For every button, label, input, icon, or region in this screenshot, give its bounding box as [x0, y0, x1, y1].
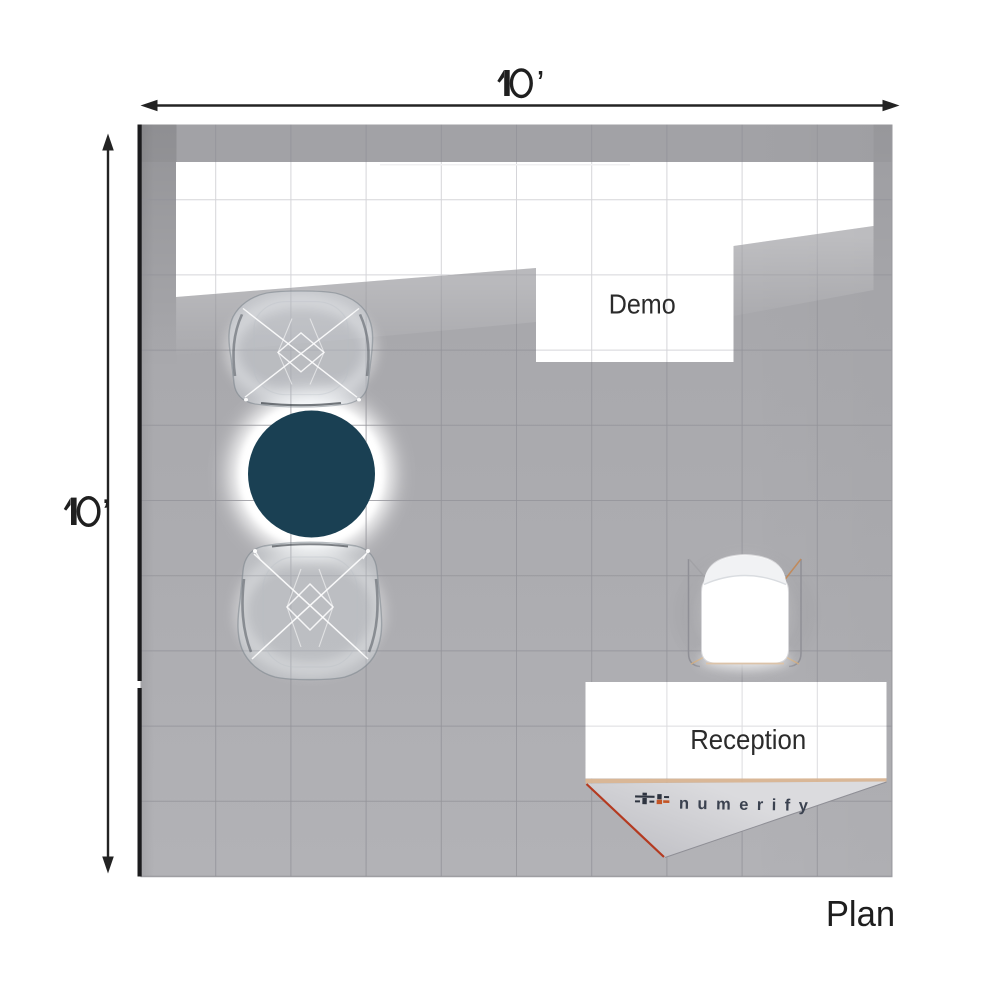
svg-text:Demo: Demo: [609, 289, 676, 320]
svg-text:Plan: Plan: [826, 893, 895, 934]
svg-text:’: ’: [102, 491, 110, 533]
svg-text:Reception: Reception: [690, 724, 806, 755]
svg-text:’: ’: [537, 63, 545, 104]
svg-text:numerify: numerify: [679, 795, 809, 815]
